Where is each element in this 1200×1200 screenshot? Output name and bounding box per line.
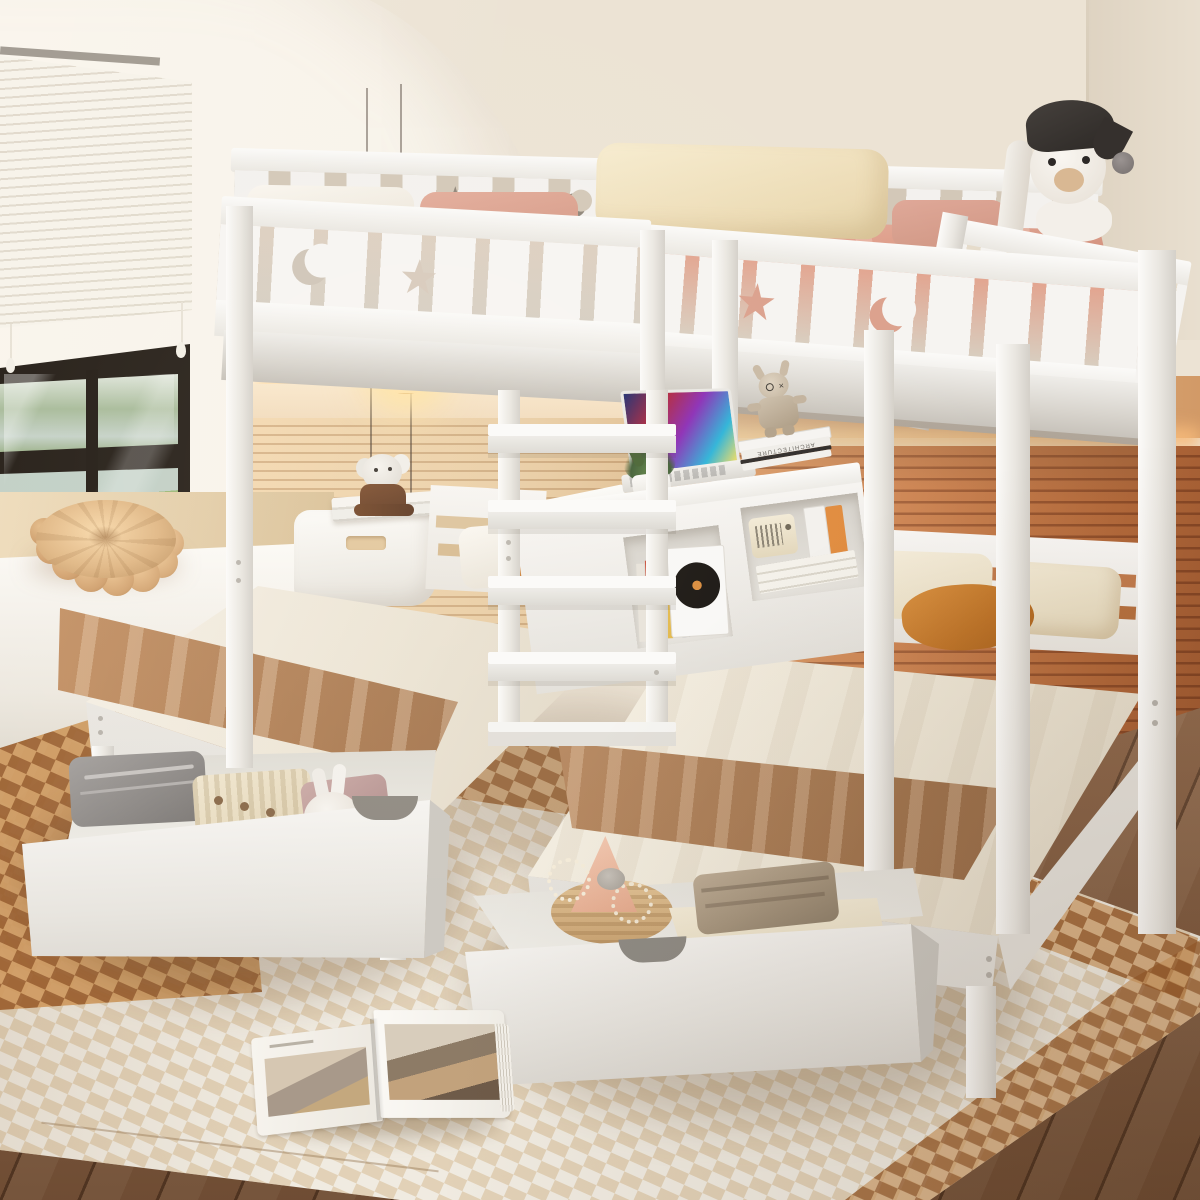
ladder-bolt (654, 670, 659, 675)
basket-pebble (597, 868, 625, 890)
desk-toy-figure: × (751, 367, 807, 439)
ladder-bolt (506, 556, 511, 561)
bunny-eye (1048, 158, 1056, 166)
bunny-eye (1082, 156, 1090, 164)
left-drawer (8, 740, 448, 980)
ladder-step (488, 652, 676, 686)
knit-button (240, 802, 249, 811)
ladder-step (488, 576, 676, 610)
knit-button (266, 808, 275, 817)
post-bolt (1152, 700, 1158, 706)
bedroom-photo: ARCHITECTURE × (0, 0, 1200, 1200)
right-drawer (455, 842, 939, 1092)
bunny-muzzle (1054, 168, 1084, 192)
right-bed-leg-front (966, 986, 996, 1098)
desk-cubby-right (740, 493, 869, 602)
knit-button (214, 796, 223, 805)
post-bolt (236, 560, 241, 565)
bunk-post-front-left (226, 206, 253, 768)
blind-cord-pull-left (6, 358, 15, 373)
blind-cord-pull-right (176, 342, 186, 358)
bunk-post-right-mid (864, 330, 894, 908)
ladder-step (488, 722, 676, 746)
magazine-left-photo (264, 1047, 369, 1117)
radio-grille (755, 523, 784, 548)
toy-leg (764, 427, 777, 438)
ladder-step (488, 500, 676, 534)
ladder-step (488, 424, 676, 458)
frame-bolt (98, 730, 103, 735)
ladder (498, 390, 674, 746)
toy-leg (782, 424, 795, 435)
bunny-nightcap-pompom (1112, 152, 1134, 174)
toy-eye-x: × (778, 382, 786, 390)
post-bolt (236, 578, 241, 583)
magazine (249, 997, 520, 1157)
bunk-post-far-right (1138, 250, 1176, 934)
frame-bolt (986, 956, 992, 962)
bunk-post-right-inner (996, 344, 1030, 934)
pearl-strap (547, 858, 591, 902)
frame-bolt (98, 716, 103, 721)
magazine-right-photo (384, 1024, 500, 1100)
post-bolt (1152, 720, 1158, 726)
frame-bolt (986, 972, 992, 978)
ladder-bolt (506, 540, 511, 545)
blinds-slats (0, 52, 192, 342)
